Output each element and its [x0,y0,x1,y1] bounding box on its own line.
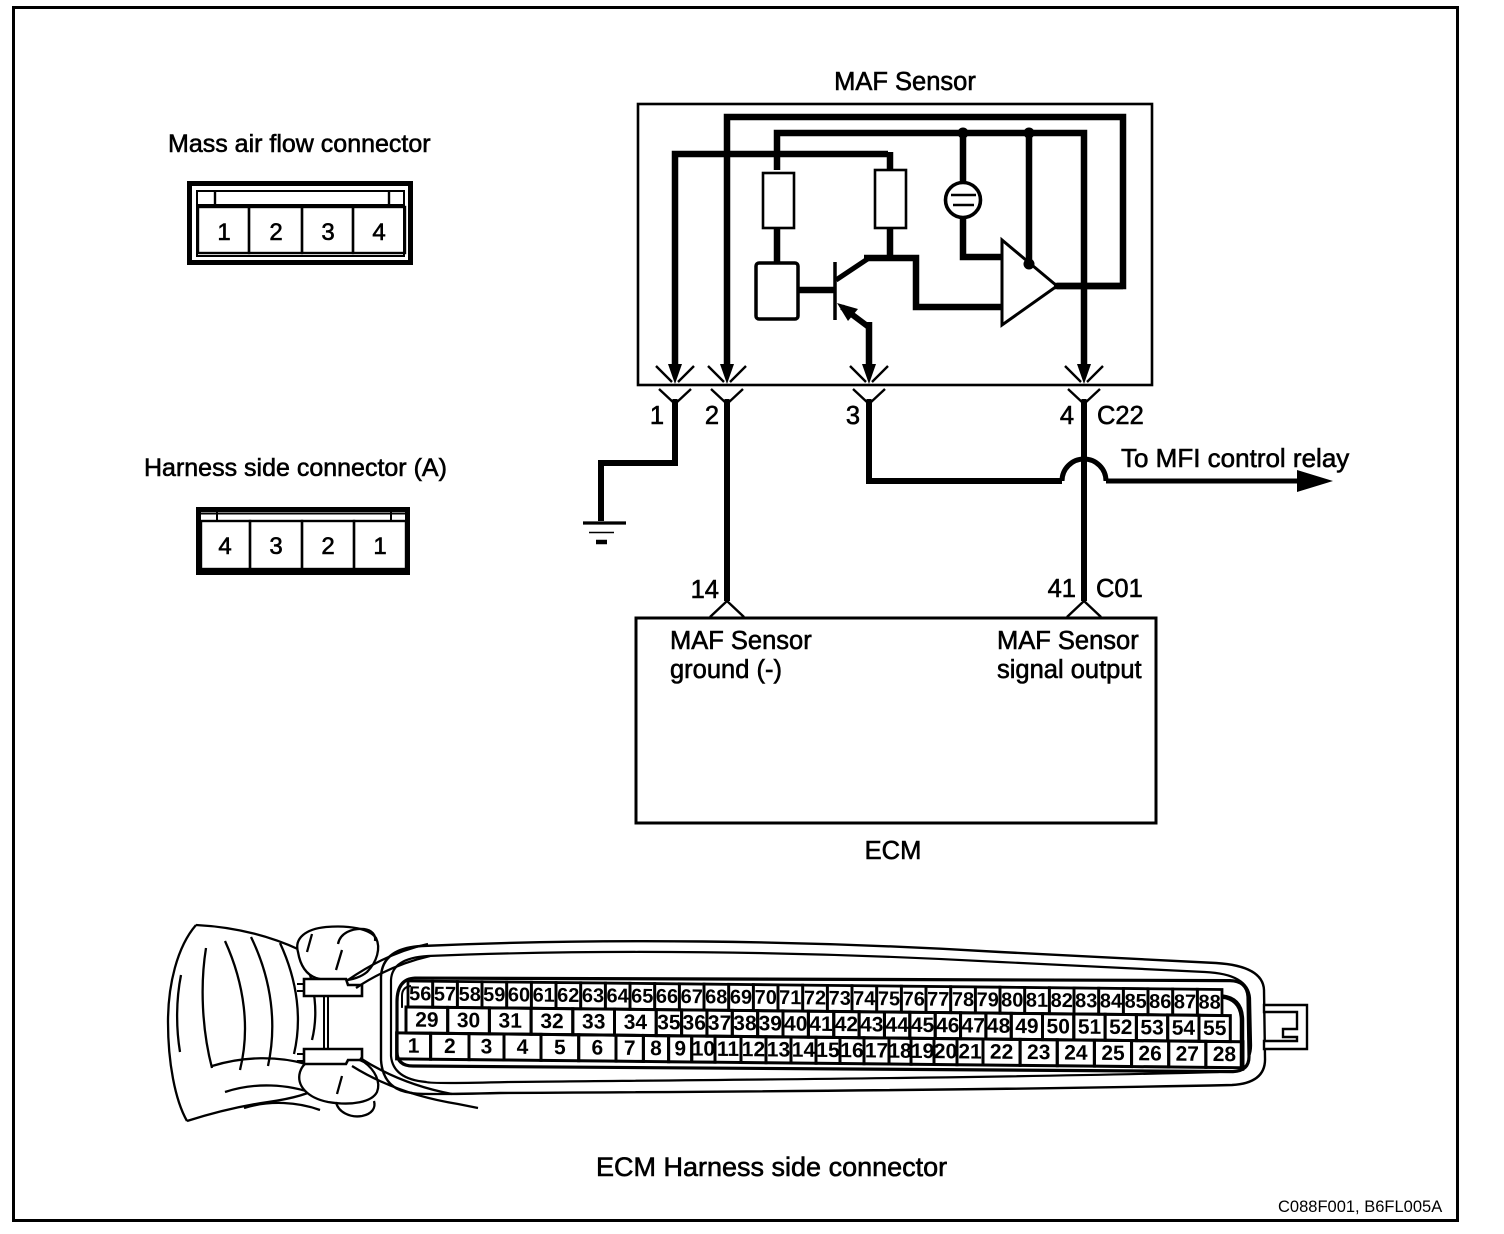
svg-text:80: 80 [1001,989,1023,1011]
svg-text:3: 3 [846,402,860,430]
svg-text:MAF Sensor: MAF Sensor [997,627,1139,655]
svg-text:70: 70 [755,987,777,1009]
svg-text:32: 32 [540,1010,563,1033]
svg-text:3: 3 [269,533,282,560]
svg-text:67: 67 [681,986,703,1008]
svg-text:56: 56 [409,983,431,1005]
svg-text:40: 40 [784,1013,807,1036]
svg-text:14: 14 [691,576,719,604]
svg-text:52: 52 [1109,1016,1132,1039]
svg-text:4: 4 [372,219,385,246]
svg-text:1: 1 [650,402,664,430]
svg-text:66: 66 [656,986,678,1008]
svg-text:7: 7 [624,1037,636,1060]
svg-text:2: 2 [705,402,719,430]
svg-text:46: 46 [936,1014,959,1037]
svg-text:84: 84 [1100,990,1123,1012]
svg-text:76: 76 [903,988,925,1010]
svg-text:85: 85 [1125,991,1147,1013]
svg-text:78: 78 [952,989,974,1011]
svg-text:15: 15 [816,1039,840,1062]
svg-text:59: 59 [483,984,505,1006]
svg-text:17: 17 [865,1039,888,1062]
svg-text:87: 87 [1174,991,1196,1013]
svg-text:20: 20 [934,1040,957,1063]
svg-text:88: 88 [1199,991,1221,1013]
svg-text:28: 28 [1213,1043,1237,1066]
svg-text:ground (-): ground (-) [670,656,782,684]
svg-text:9: 9 [674,1037,686,1060]
svg-text:41: 41 [1048,575,1076,603]
svg-text:61: 61 [533,984,555,1006]
svg-text:16: 16 [840,1039,863,1062]
svg-text:71: 71 [779,987,801,1009]
svg-text:ECM Harness side connector: ECM Harness side connector [596,1152,947,1182]
svg-text:4: 4 [517,1036,529,1059]
svg-text:3: 3 [481,1035,493,1058]
svg-text:8: 8 [650,1037,662,1060]
svg-text:1: 1 [373,533,386,560]
svg-text:44: 44 [885,1014,909,1037]
svg-text:C22: C22 [1097,402,1144,430]
svg-text:25: 25 [1101,1042,1125,1065]
svg-text:11: 11 [717,1038,740,1061]
svg-text:49: 49 [1015,1015,1038,1038]
svg-text:83: 83 [1075,990,1097,1012]
svg-text:63: 63 [582,985,604,1007]
svg-text:72: 72 [804,987,826,1009]
svg-text:34: 34 [624,1011,648,1034]
svg-text:31: 31 [499,1010,523,1033]
svg-text:MAF Sensor: MAF Sensor [834,68,976,96]
svg-text:55: 55 [1203,1017,1227,1040]
svg-text:22: 22 [990,1041,1013,1064]
svg-text:42: 42 [835,1013,858,1036]
svg-text:13: 13 [767,1038,790,1061]
svg-text:4: 4 [1060,402,1074,430]
svg-text:26: 26 [1138,1042,1161,1065]
svg-text:6: 6 [592,1037,604,1060]
svg-text:Harness side connector (A): Harness side connector (A) [144,454,447,482]
svg-text:53: 53 [1140,1016,1163,1039]
svg-text:79: 79 [977,989,999,1011]
svg-text:2: 2 [321,533,334,560]
svg-text:54: 54 [1172,1017,1196,1040]
svg-text:39: 39 [759,1012,782,1035]
svg-text:C01: C01 [1096,575,1143,603]
svg-text:19: 19 [911,1040,934,1063]
svg-text:10: 10 [692,1038,715,1061]
svg-text:2: 2 [444,1035,456,1058]
svg-text:37: 37 [708,1012,731,1035]
svg-text:41: 41 [809,1013,833,1036]
svg-text:35: 35 [657,1011,681,1034]
svg-text:60: 60 [508,984,530,1006]
svg-text:1: 1 [217,219,230,246]
svg-text:4: 4 [218,533,231,560]
svg-text:65: 65 [631,986,653,1008]
svg-text:27: 27 [1176,1043,1199,1066]
svg-text:24: 24 [1064,1041,1088,1064]
svg-text:68: 68 [705,986,727,1008]
svg-text:86: 86 [1149,991,1171,1013]
svg-text:51: 51 [1078,1016,1102,1039]
svg-text:signal output: signal output [997,656,1142,684]
svg-text:82: 82 [1051,990,1073,1012]
svg-text:1: 1 [408,1035,420,1058]
svg-text:45: 45 [911,1014,935,1037]
svg-text:81: 81 [1026,990,1048,1012]
svg-text:23: 23 [1027,1041,1050,1064]
svg-text:29: 29 [415,1009,438,1032]
svg-text:C088F001, B6FL005A: C088F001, B6FL005A [1278,1198,1442,1216]
svg-text:3: 3 [321,219,334,246]
svg-text:2: 2 [269,219,282,246]
svg-text:48: 48 [987,1015,1011,1038]
svg-text:57: 57 [434,983,456,1005]
svg-text:64: 64 [607,985,630,1007]
svg-text:77: 77 [927,989,949,1011]
svg-text:69: 69 [730,987,752,1009]
svg-text:36: 36 [683,1011,706,1034]
svg-text:30: 30 [457,1009,480,1032]
svg-text:To MFI control relay: To MFI control relay [1121,443,1349,473]
svg-text:18: 18 [888,1040,912,1063]
svg-text:12: 12 [742,1038,765,1061]
svg-text:21: 21 [958,1040,982,1063]
svg-text:43: 43 [860,1013,883,1036]
svg-text:58: 58 [459,984,481,1006]
svg-text:Mass air flow connector: Mass air flow connector [168,130,431,158]
svg-text:74: 74 [853,988,876,1010]
svg-text:38: 38 [733,1012,757,1035]
svg-text:ECM: ECM [865,837,922,865]
svg-text:33: 33 [582,1010,605,1033]
svg-text:MAF Sensor: MAF Sensor [670,627,812,655]
svg-text:50: 50 [1047,1015,1070,1038]
svg-text:75: 75 [878,988,900,1010]
svg-text:73: 73 [829,988,851,1010]
svg-text:47: 47 [962,1014,985,1037]
svg-text:5: 5 [554,1036,566,1059]
svg-text:62: 62 [557,985,579,1007]
svg-text:14: 14 [792,1039,816,1062]
